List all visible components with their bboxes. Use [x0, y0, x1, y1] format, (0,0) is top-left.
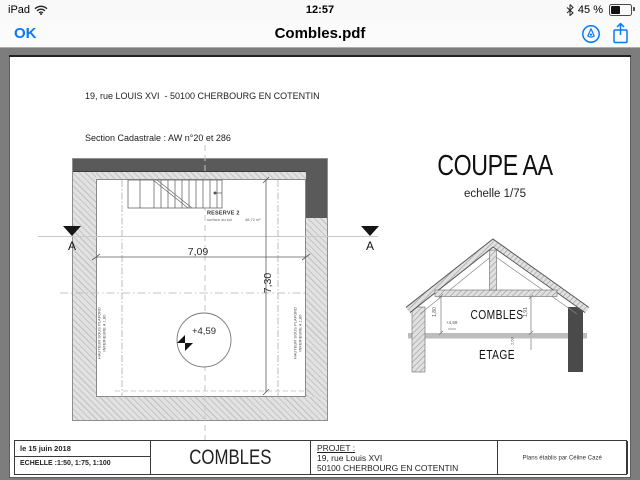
status-right: 45 %: [566, 0, 632, 20]
battery-percent: 45 %: [578, 4, 603, 16]
battery-icon: [609, 4, 632, 16]
project-label: PROJET :: [317, 443, 491, 453]
coupe-dim-below: 2,60: [510, 330, 518, 352]
bluetooth-icon: [566, 4, 574, 16]
clock: 12:57: [0, 0, 640, 20]
reserve-room-label: RESERVE 2 surface au sol 48.72 m²: [207, 210, 277, 222]
address-line: 19, rue LOUIS XVI - 50100 CHERBOURG EN C…: [85, 89, 320, 103]
coupe-room-etage: ETAGE: [456, 348, 538, 362]
coupe-title: COUPE AA: [427, 150, 563, 183]
coupe-dim-left: 1,80: [432, 301, 440, 323]
wifi-icon: [34, 5, 48, 15]
project-cell: PROJET : 19, rue Louis XVI 50100 CHERBOU…: [311, 441, 498, 474]
sheet-title-cell: COMBLES: [151, 441, 311, 474]
device-label: iPad: [8, 4, 30, 16]
markup-pen-icon[interactable]: [581, 24, 601, 44]
plan-depth-dimension: 7,30: [262, 268, 274, 298]
sheet-title: COMBLES: [189, 446, 271, 470]
coupe-dim-right: 1,91: [523, 301, 531, 323]
project-address-2: 50100 CHERBOURG EN COTENTIN: [317, 463, 491, 473]
drawing-date: le 15 juin 2018: [15, 441, 150, 457]
ceiling-height-note-right: HAUTEUR SOUS PLAFOND INFERIEURE A 1,80: [293, 298, 303, 368]
ceiling-height-note-left: HAUTEUR SOUS PLAFOND INFERIEURE A 1,80: [97, 298, 107, 368]
ipad-screen: 12:57 iPad 45 % OK Combles.pdf: [0, 0, 640, 480]
drawing-scales: ECHELLE :1:50, 1:75, 1:100: [15, 457, 150, 467]
reserve-title: RESERVE 2: [207, 210, 277, 216]
document-title: Combles.pdf: [0, 20, 640, 47]
coupe-level-value: +4,59: [446, 320, 476, 325]
reserve-surface-value: 48.72 m²: [245, 218, 261, 223]
reserve-surface-label: surface au sol: [207, 218, 232, 223]
credit-cell: Plans établis par Céline Cazé: [498, 441, 628, 474]
cadastre-line: Section Cadastrale : AW n°20 et 286: [85, 131, 320, 145]
toolbar-actions: [581, 20, 630, 47]
pdf-page[interactable]: 19, rue LOUIS XVI - 50100 CHERBOURG EN C…: [10, 57, 630, 477]
credit-text: Plans établis par Céline Cazé: [523, 454, 602, 461]
titleblock-date-scale-cell: le 15 juin 2018 ECHELLE :1:50, 1:75, 1:1…: [15, 441, 151, 474]
section-marker-a-left: A: [64, 239, 80, 253]
section-marker-a-right: A: [362, 239, 378, 253]
plan-level-value: +4,59: [182, 326, 226, 337]
status-bar: 12:57 iPad 45 %: [0, 0, 640, 20]
coupe-scale: echelle 1/75: [410, 188, 580, 200]
status-left: iPad: [8, 0, 48, 20]
title-block: le 15 juin 2018 ECHELLE :1:50, 1:75, 1:1…: [14, 440, 627, 475]
project-address-1: 19, rue Louis XVI: [317, 453, 491, 463]
share-icon[interactable]: [611, 22, 630, 45]
page-top-edge: [9, 55, 631, 57]
plan-width-dimension: 7,09: [168, 246, 228, 258]
pdf-toolbar: OK Combles.pdf: [0, 20, 640, 48]
